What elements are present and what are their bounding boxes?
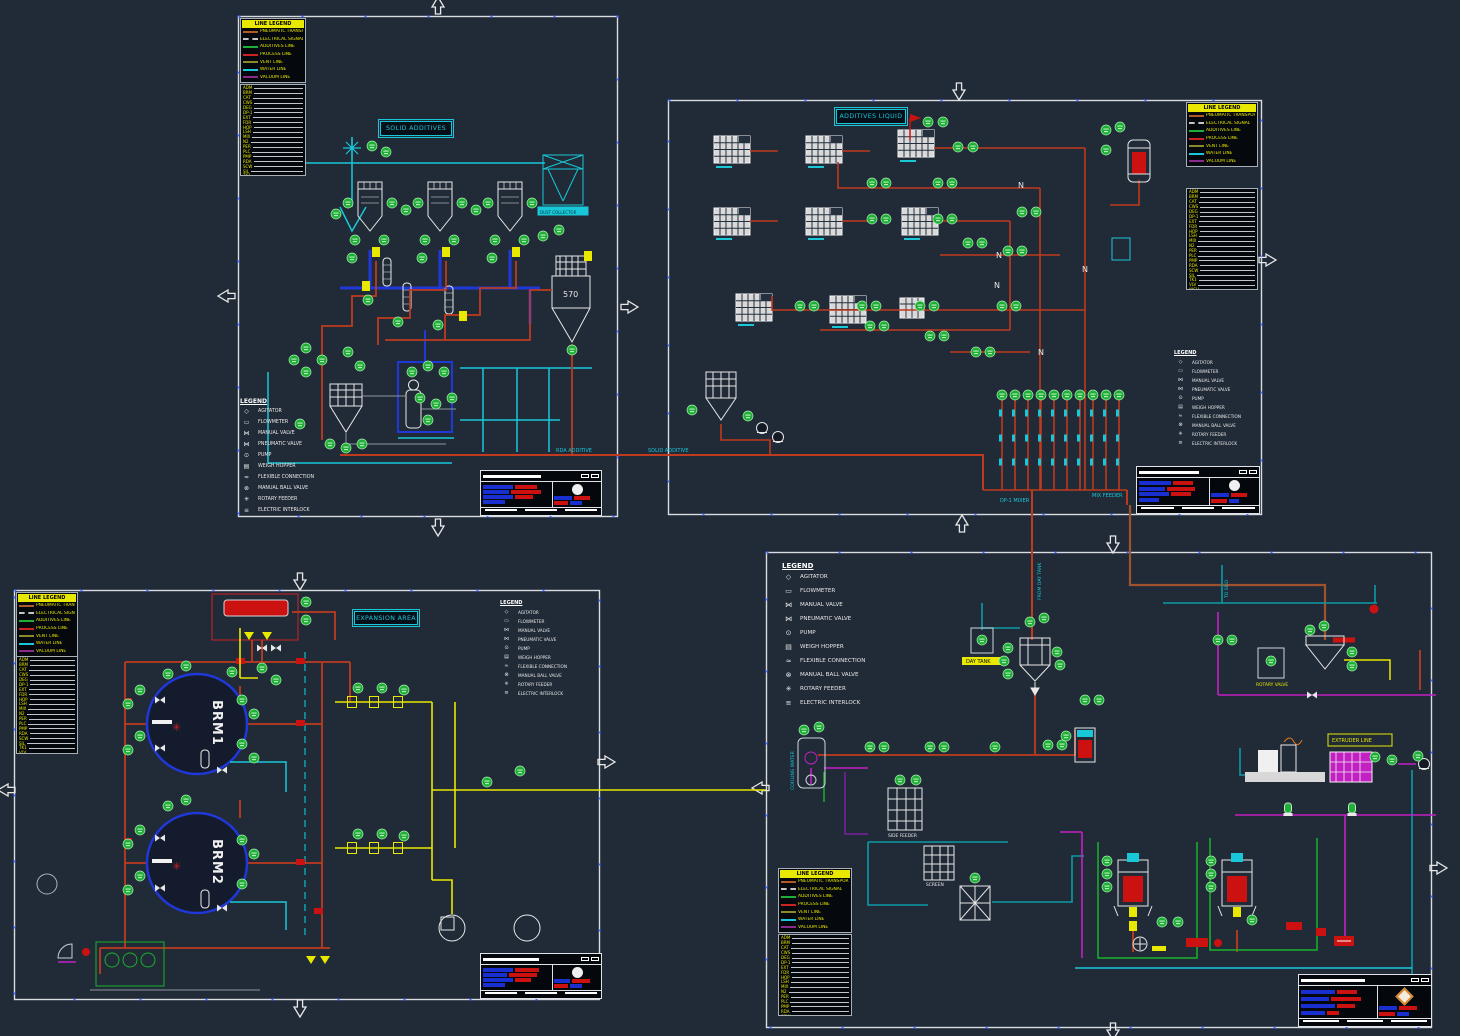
titleblock-sheet1 [480, 470, 602, 516]
pipe-label-dp1: DP-1 MIXER [1000, 498, 1030, 504]
cad-canvas[interactable]: 570 DUST COLLECTOR [0, 0, 1460, 1036]
legend-header: LINE LEGEND [242, 20, 304, 28]
legend-header: LINE LEGEND [18, 594, 76, 602]
legend-title: LEGEND [782, 562, 932, 570]
legend-row: PNEUMATIC TRANSPORT [18, 602, 76, 610]
charge-tank [1075, 728, 1095, 762]
titleblock-header [1137, 467, 1259, 478]
titleblock-rows [481, 965, 553, 990]
legend-title: LEGEND [240, 398, 352, 405]
storage-tanks [1114, 853, 1256, 931]
process-pipes-red [322, 261, 572, 455]
legend-row: ELECTRICAL SIGNAL [242, 36, 304, 44]
legend-row: VENT LINE [780, 908, 850, 916]
legend-row: PROCESS LINE [18, 625, 76, 633]
legend-header: LINE LEGEND [780, 870, 850, 878]
titleblock-logo-panel [553, 482, 601, 507]
battery-ticks [999, 413, 1122, 462]
sheet-expansion-area: BRM1 BRM2 ✳ ✳ [37, 594, 540, 990]
symbol-row: ≡ELECTRIC INTERLOCK [500, 690, 606, 696]
symbol-legend-sheet1: LEGEND ◇AGITATOR▭FLOWMETER⋈MANUAL VALVE⋈… [240, 398, 352, 518]
brm-mills: BRM1 BRM2 ✳ ✳ [147, 674, 247, 913]
legend-header: LINE LEGEND [1188, 104, 1256, 112]
svg-text:N: N [1082, 265, 1088, 274]
dosing-tanks [714, 130, 938, 323]
extruder-machine: EXTRUDER LINE [1245, 734, 1430, 782]
symbol-row: ✳ROTARY FEEDER [500, 681, 606, 687]
symbol-row: ⋈MANUAL VALVE [500, 627, 606, 633]
legend-row: ADDITIVES LINE [780, 893, 850, 901]
brm2-label: BRM2 [209, 839, 224, 885]
side-feeder-label: SIDE FEEDER [888, 833, 917, 839]
symbol-row: ✳ROTARY FEEDER [1174, 431, 1260, 437]
red-marker-dot [1370, 605, 1379, 614]
legend-row: PNEUMATIC TRANSPORT [1188, 112, 1256, 120]
symbol-row: ⋈MANUAL VALVE [240, 430, 352, 437]
legend-row: PROCESS LINE [780, 901, 850, 909]
title-additives-liquid: ADDITIVES LIQUID [836, 109, 906, 124]
dosing-pipes-red [721, 148, 1139, 505]
titleblock-footer [1299, 1018, 1431, 1026]
title-solid-additives: SOLID ADDITIVES [380, 121, 452, 136]
symbol-row: ⊙PUMP [240, 452, 352, 459]
feeder-capsules [383, 258, 453, 314]
svg-text:✳: ✳ [172, 860, 181, 873]
symbol-row: ⋈MANUAL VALVE [782, 601, 932, 609]
legend-row: ADDITIVES LINE [18, 617, 76, 625]
line-legend-sheet3: LINE LEGEND PNEUMATIC TRANSPORTELECTRICA… [16, 592, 78, 657]
line-legend-sheet1: LINE LEGEND PNEUMATIC TRANSPORTELECTRICA… [240, 18, 306, 83]
symbol-row: ◇AGITATOR [1174, 359, 1260, 365]
symbol-row: ⋈PNEUMATIC VALVE [240, 441, 352, 448]
mixer-vessel [1020, 638, 1050, 695]
abbrev-row: TK1 [243, 174, 303, 176]
svg-text:N: N [996, 251, 1002, 260]
screen-label: SCREEN [926, 882, 944, 888]
extruder-label: EXTRUDER LINE [1332, 738, 1372, 744]
symbol-row: ◇AGITATOR [240, 408, 352, 415]
legend-row: VENT LINE [1188, 142, 1256, 150]
day-tank-label: DAY TANK [966, 659, 991, 665]
cyclone-filter [538, 155, 588, 215]
symbol-row: ✳ROTARY FEEDER [782, 685, 932, 693]
symbol-row: ⊗MANUAL BALL VALVE [500, 672, 606, 678]
symbol-row: ≈FLEXIBLE CONNECTION [240, 474, 352, 481]
titleblock-sheet4 [1298, 974, 1432, 1027]
silos [358, 182, 522, 231]
from-day-tank-label: FROM DAY TANK [1037, 562, 1043, 600]
symbol-row: ⊙PUMP [1174, 395, 1260, 401]
hopper-570-label: 570 [563, 290, 578, 299]
pipe-label-solid: SOLID ADDITIVE [648, 448, 689, 454]
standing-instruments [1284, 803, 1357, 816]
tank-outlet-items [1133, 922, 1354, 951]
titleblock-header [481, 471, 601, 482]
to-silo-label: TO SILO [1224, 579, 1230, 599]
legend-row: WATER LINE [242, 66, 304, 74]
symbol-row: ⋈PNEUMATIC VALVE [1174, 386, 1260, 392]
valve-tags-yellow [362, 247, 592, 321]
cyan-star [343, 139, 361, 157]
line-legend-sheet2: LINE LEGEND PNEUMATIC TRANSPORTELECTRICA… [1186, 102, 1258, 167]
titleblock-footer [481, 990, 601, 998]
symbol-row: ▭FLOWMETER [782, 587, 932, 595]
line-legend-sheet4: LINE LEGEND PNEUMATIC TRANSPORTELECTRICA… [778, 868, 852, 933]
legend-row: ELECTRICAL SIGNAL [1188, 120, 1256, 128]
symbol-row: ◇AGITATOR [782, 573, 932, 581]
symbol-row: ⋈PNEUMATIC VALVE [500, 636, 606, 642]
titleblock-sheet2 [1136, 466, 1260, 514]
symbol-row: ⊙PUMP [782, 629, 932, 637]
symbol-row: ≡ELECTRIC INTERLOCK [1174, 440, 1260, 446]
legend-row: ADDITIVES LINE [1188, 127, 1256, 135]
legend-row: PROCESS LINE [242, 51, 304, 59]
abbrev-table-sheet3: ADMBRMCATCWSDEGDP-1EXTFDRHOPLSHMIXN2PERP… [16, 656, 78, 754]
symbol-row: ✳ROTARY FEEDER [240, 496, 352, 503]
sample-box [1112, 238, 1130, 260]
titleblock-header [1299, 975, 1431, 986]
symbol-row: ⋈MANUAL VALVE [1174, 377, 1260, 383]
symbol-legend-sheet2: LEGEND ◇AGITATOR▭FLOWMETER⋈MANUAL VALVE⋈… [1174, 350, 1260, 449]
legend-title: LEGEND [500, 600, 606, 606]
legend-row: PROCESS LINE [1188, 135, 1256, 143]
symbol-row: ▤WEIGH HOPPER [240, 463, 352, 470]
symbol-row: ▭FLOWMETER [1174, 368, 1260, 374]
titleblock-logo-panel [1378, 986, 1431, 1018]
company-logo [572, 484, 583, 495]
abbrev-row: VLV [19, 751, 75, 754]
legend-row: VACUUM LINE [1188, 158, 1256, 166]
feed-cyclone [1258, 636, 1390, 680]
legend-row: ADDITIVES LINE [242, 43, 304, 51]
brm1-label: BRM1 [209, 700, 224, 746]
symbol-row: ≈FLEXIBLE CONNECTION [500, 663, 606, 669]
legend-row: VENT LINE [18, 632, 76, 640]
day-tank-box: DAY TANK [962, 628, 1002, 665]
company-logo-diamond [1395, 987, 1413, 1005]
symbol-row: ▤WEIGH HOPPER [500, 654, 606, 660]
symbol-row: ⊗MANUAL BALL VALVE [240, 485, 352, 492]
legend-row: VENT LINE [242, 58, 304, 66]
symbol-row: ≈FLEXIBLE CONNECTION [1174, 413, 1260, 419]
additive-pipes-yellow [240, 628, 455, 914]
titleblock-logo-panel [553, 965, 601, 990]
pipe-label-rda: RDA ADDITIVE [556, 448, 592, 454]
symbol-row: ▤WEIGH HOPPER [1174, 404, 1260, 410]
process-pipes-red [100, 612, 350, 974]
abbrev-row: SCW [781, 1014, 849, 1016]
rotary-valve-label: ROTARY VALVE [1256, 682, 1288, 688]
svg-text:N: N [994, 281, 1000, 290]
symbol-row: ⊗MANUAL BALL VALVE [1174, 422, 1260, 428]
symbol-row: ◇AGITATOR [500, 609, 606, 615]
legend-row: VACUUM LINE [18, 648, 76, 656]
svg-text:N: N [1018, 181, 1024, 190]
symbol-row: ≈FLEXIBLE CONNECTION [782, 657, 932, 665]
symbol-row: ⋈PNEUMATIC VALVE [782, 615, 932, 623]
titleblock-sheet3 [480, 953, 602, 999]
cooling-water-label: COOLING WATER [790, 750, 796, 790]
small-table [706, 372, 736, 420]
title-expansion-area: EXPANSION AREA [354, 611, 418, 625]
symbol-row: ▭FLOWMETER [240, 419, 352, 426]
svg-text:✳: ✳ [172, 721, 181, 734]
symbol-row: ≡ELECTRIC INTERLOCK [782, 699, 932, 707]
titleblock-rows [1137, 478, 1210, 505]
titleblock-logo-panel [1210, 478, 1259, 505]
legend-row: PNEUMATIC TRANSPORT [242, 28, 304, 36]
utility-machines [37, 874, 540, 990]
symbol-legend-sheet4: LEGEND ◇AGITATOR▭FLOWMETER⋈MANUAL VALVE⋈… [782, 562, 932, 713]
legend-title: LEGEND [1174, 350, 1260, 356]
feeder-boxes [888, 788, 990, 920]
titleblock-header [481, 954, 601, 965]
header-tank [212, 594, 298, 640]
symbol-row: ≡ELECTRIC INTERLOCK [240, 507, 352, 514]
symbol-legend-sheet3: LEGEND ◇AGITATOR▭FLOWMETER⋈MANUAL VALVE⋈… [500, 600, 606, 699]
legend-row: VACUUM LINE [780, 924, 850, 932]
titleblock-footer [1137, 505, 1259, 513]
legend-row: WATER LINE [18, 640, 76, 648]
abbrev-table-sheet1: ADMBRMCATCWSDEGDP-1EXTFDRHOPLSHMIXN2PERP… [240, 84, 306, 176]
legend-row: WATER LINE [1188, 150, 1256, 158]
pipe-label-mix: MIX FEEDER [1092, 493, 1123, 499]
legend-row: PNEUMATIC TRANSPORT [780, 878, 850, 886]
dust-collector-label: DUST COLLECTOR [540, 210, 577, 215]
symbol-row: ⊙PUMP [500, 645, 606, 651]
titleblock-rows [1299, 986, 1378, 1018]
legend-row: WATER LINE [780, 916, 850, 924]
legend-row: ELECTRICAL SIGNAL [18, 610, 76, 618]
abbrev-table-sheet4: ADMBRMCATCWSDEGDP-1EXTFDRHOPLSHMIXN2PERP… [778, 934, 852, 1016]
instrument-bubbles [687, 117, 1125, 421]
legend-row: VACUUM LINE [242, 74, 304, 82]
titleblock-rows [481, 482, 553, 507]
hopper-570 [552, 256, 590, 342]
symbol-row: ▤WEIGH HOPPER [782, 643, 932, 651]
sheet-additives-liquid: N N N N N SOLID ADDITIVE DP-1 MIXER MIX … [648, 114, 1150, 505]
company-logo [1229, 480, 1240, 491]
titleblock-footer [481, 507, 601, 515]
abbrev-table-sheet2: ADMBRMCATCWSDEGDP-1EXTFDRHOPLSHMIXN2PERP… [1186, 188, 1258, 290]
symbol-row: ▭FLOWMETER [500, 618, 606, 624]
svg-text:N: N [1038, 348, 1044, 357]
company-logo [572, 967, 583, 978]
buffer-vessel [1128, 140, 1150, 182]
legend-row: ELECTRICAL SIGNAL [780, 886, 850, 894]
symbol-row: ⊗MANUAL BALL VALVE [782, 671, 932, 679]
abbrev-row: WGH [1189, 288, 1255, 290]
